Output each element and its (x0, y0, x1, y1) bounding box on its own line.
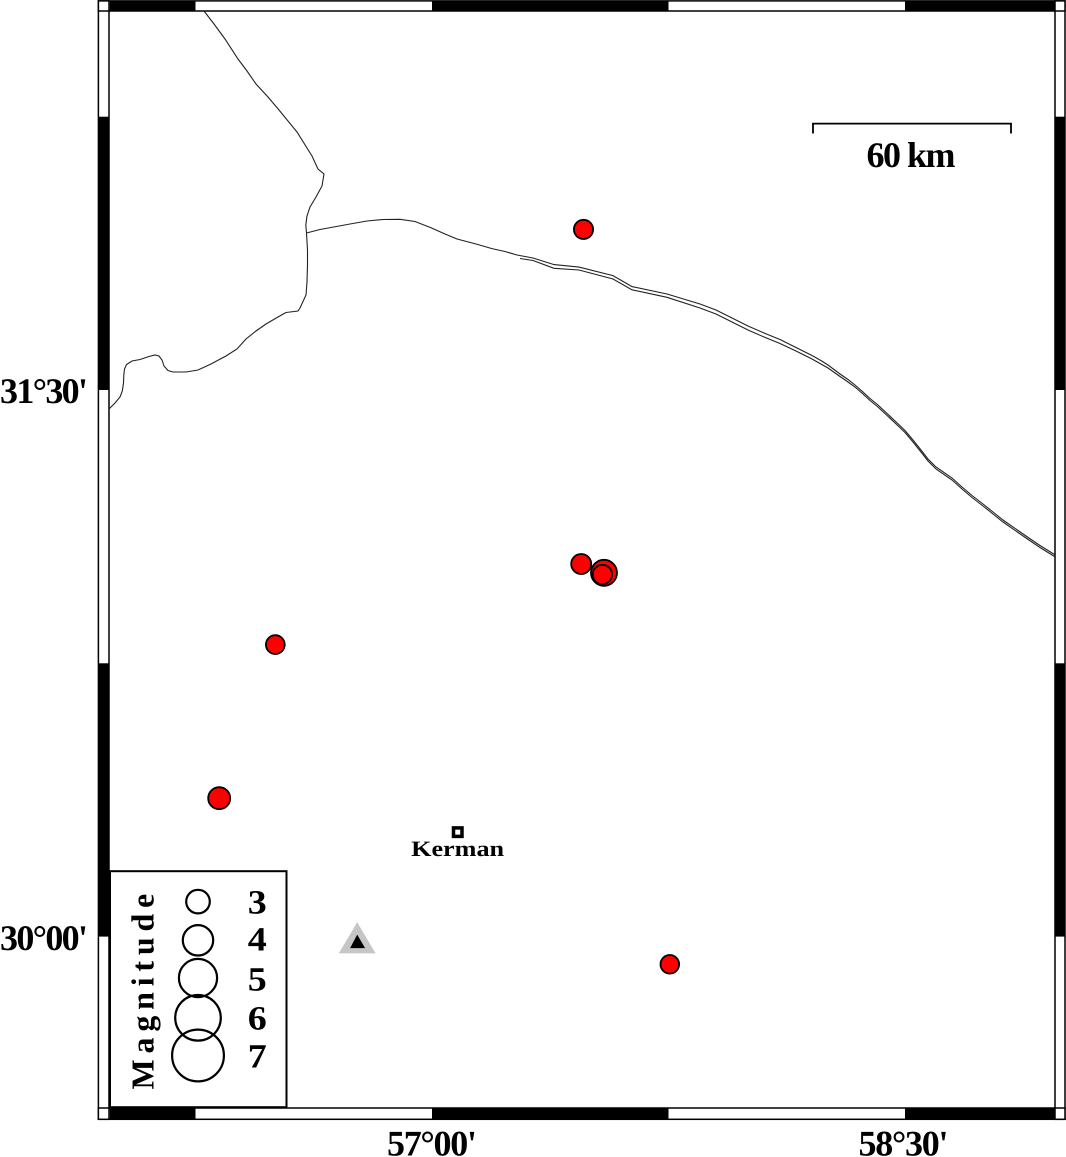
svg-text:60 km: 60 km (867, 135, 956, 175)
svg-text:57°00': 57°00' (387, 1124, 477, 1157)
svg-text:Magnitude: Magnitude (125, 888, 162, 1090)
svg-text:6: 6 (248, 1000, 267, 1037)
svg-text:Kerman: Kerman (411, 836, 504, 861)
svg-text:7: 7 (248, 1039, 267, 1076)
svg-text:58°30': 58°30' (859, 1124, 949, 1157)
svg-text:30°00': 30°00' (0, 918, 88, 958)
svg-text:5: 5 (248, 962, 267, 999)
svg-text:31°30': 31°30' (0, 371, 88, 411)
svg-text:3: 3 (248, 885, 267, 922)
svg-text:4: 4 (248, 922, 267, 959)
